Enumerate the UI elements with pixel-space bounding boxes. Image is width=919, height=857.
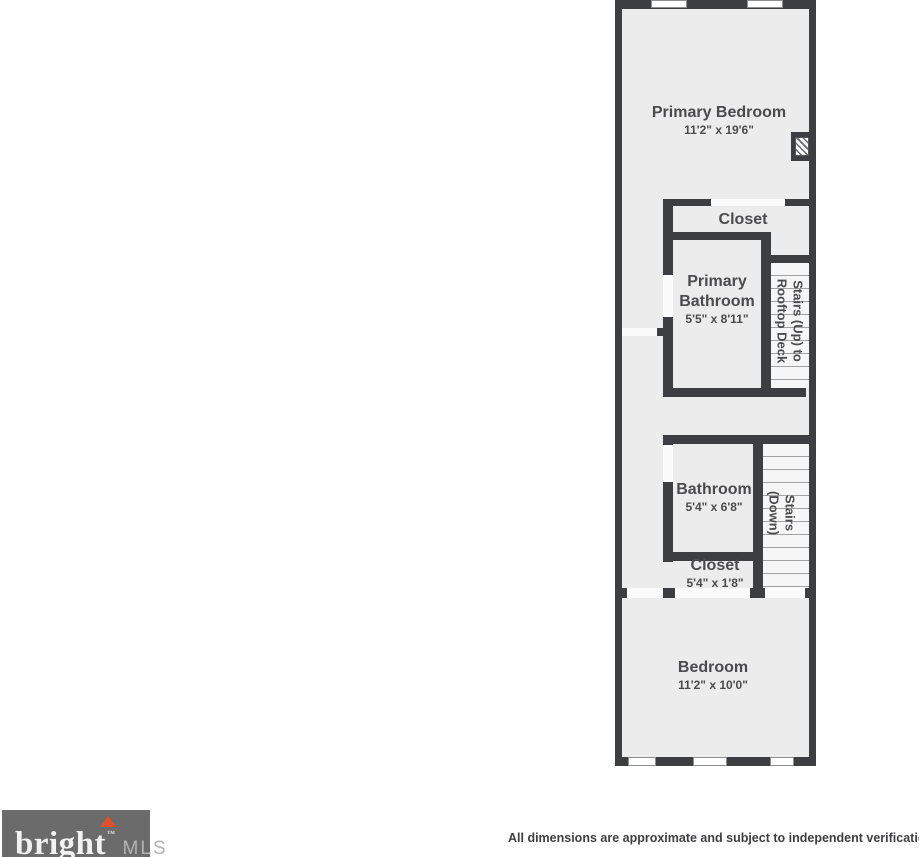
wall-right xyxy=(809,0,816,766)
opening-stairs-landing xyxy=(765,588,805,598)
opening-closet-top xyxy=(711,199,785,206)
stairs-up-line1: Stairs (Up) to xyxy=(790,279,806,364)
wall-bedroom-top-4 xyxy=(805,588,809,598)
primary-bedroom-name: Primary Bedroom xyxy=(652,103,786,123)
label-primary-bathroom: Primary Bathroom 5'5" x 8'11" xyxy=(665,272,769,327)
label-closet-upper: Closet xyxy=(719,210,768,230)
bright-mls-logo: bright™ MLS xyxy=(2,810,150,857)
opening-bath2-door xyxy=(663,445,673,482)
stairs-down-line1: Stairs xyxy=(782,491,798,535)
bathroom-name: Bathroom xyxy=(676,480,752,500)
bedroom-name: Bedroom xyxy=(678,658,748,678)
wall-bath2-right xyxy=(753,444,763,598)
label-stairs-up: Stairs (Up) to Rooftop Deck xyxy=(774,279,805,364)
opening-bedroom-door xyxy=(627,588,663,598)
wall-closet-bottom xyxy=(663,232,767,240)
wall-left xyxy=(615,0,622,766)
closet-upper-name: Closet xyxy=(719,210,768,230)
opening-hallway xyxy=(622,328,657,336)
mls-logo-text: MLS xyxy=(123,838,168,857)
window-bottom-1 xyxy=(628,757,656,766)
label-primary-bedroom: Primary Bedroom 11'2" x 19'6" xyxy=(652,103,786,138)
window-top-1 xyxy=(651,0,687,8)
dimensions-disclaimer: All dimensions are approximate and subje… xyxy=(508,831,919,845)
stairs-down-line2: (Down) xyxy=(766,491,782,535)
primary-bedroom-dims: 11'2" x 19'6" xyxy=(652,123,786,138)
wall-bath2-left-upper xyxy=(663,435,673,445)
wall-bedroom-top-2 xyxy=(663,588,675,598)
bright-logo-trademark: ™ xyxy=(107,829,116,838)
primary-bathroom-name: Primary Bathroom xyxy=(665,272,769,312)
wall-hallway-stub xyxy=(657,328,663,336)
wall-bath2-left-lower xyxy=(663,482,673,562)
bathroom-dims: 5'4" x 6'8" xyxy=(676,500,752,515)
window-top-2 xyxy=(747,0,783,8)
window-bottom-3 xyxy=(770,757,794,766)
wall-stairsup-top xyxy=(767,255,809,263)
bright-logo-text: bright xyxy=(15,826,106,857)
wall-closet-top-right xyxy=(785,199,816,206)
bedroom-dims: 11'2" x 10'0" xyxy=(678,678,748,693)
label-bathroom: Bathroom 5'4" x 6'8" xyxy=(676,480,752,515)
label-bedroom: Bedroom 11'2" x 10'0" xyxy=(678,658,748,693)
floorplan-page: { "plan": { "primary_bedroom": {"name": … xyxy=(0,0,919,857)
primary-bathroom-dims: 5'5" x 8'11" xyxy=(665,312,769,327)
wall-bath1-left-upper xyxy=(663,199,673,275)
label-closet-lower: Closet 5'4" x 1'8" xyxy=(686,556,743,591)
wall-top xyxy=(615,0,816,9)
chimney-hatch-icon xyxy=(795,137,809,156)
wall-bedroom-top-3 xyxy=(750,588,765,598)
closet-lower-dims: 5'4" x 1'8" xyxy=(686,576,743,591)
wall-lower-top xyxy=(663,435,816,444)
stairs-up-line2: Rooftop Deck xyxy=(774,279,790,364)
window-bottom-2 xyxy=(693,757,727,766)
closet-lower-name: Closet xyxy=(686,556,743,576)
bright-logo-wordmark: bright™ xyxy=(15,810,116,857)
floorplan-diagram: Primary Bedroom 11'2" x 19'6" Closet Pri… xyxy=(615,0,816,766)
bright-logo-triangle-icon xyxy=(100,816,116,827)
wall-mid-bottom xyxy=(663,388,806,397)
wall-bath1-left-lower xyxy=(663,317,673,397)
label-stairs-down: Stairs (Down) xyxy=(766,491,797,535)
